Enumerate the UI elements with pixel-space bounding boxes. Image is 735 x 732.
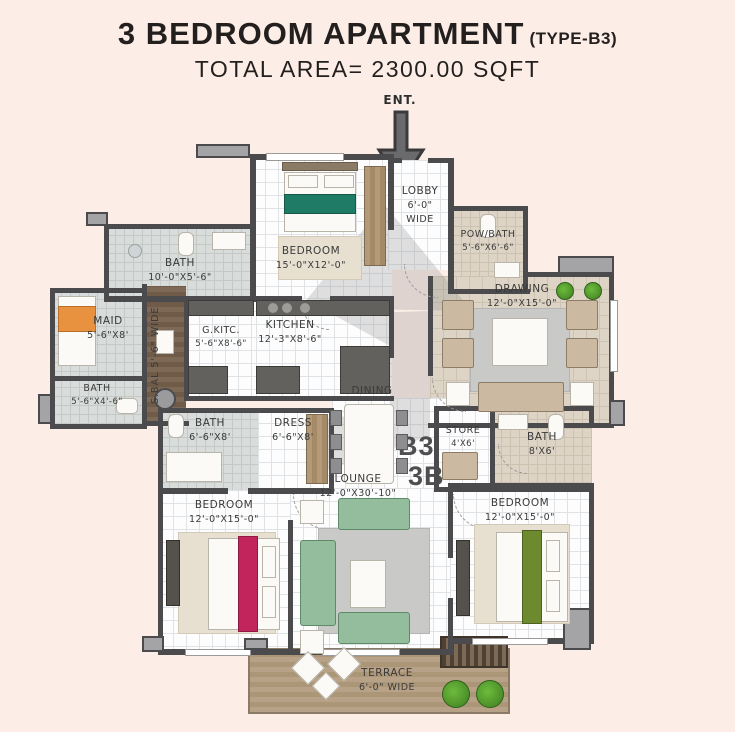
coffee-table [350, 560, 386, 608]
room-label-service-balcony: S.BAL 5'-6" WIDE [148, 300, 182, 410]
dining-chair [330, 434, 342, 450]
wall [448, 158, 454, 294]
wall [434, 487, 594, 492]
wall-column [244, 638, 268, 650]
wall-column [196, 144, 250, 158]
floor-plan-page: { "title": { "main": "3 BEDROOM APARTMEN… [0, 0, 735, 732]
bed-headboard [282, 162, 358, 171]
page-subtitle: TOTAL AREA= 2300.00 SQFT [0, 56, 735, 83]
sofa-green [300, 540, 336, 626]
dresser [456, 540, 470, 616]
wall-column [609, 400, 625, 426]
wall [142, 284, 147, 426]
wall-column [558, 256, 614, 274]
sink [498, 414, 528, 430]
wall [50, 376, 146, 381]
counter-sink [188, 366, 228, 394]
side-table [300, 630, 324, 654]
bed-pillow [288, 175, 318, 188]
wall [250, 154, 256, 302]
stove-burner [268, 303, 278, 313]
entrance-label: ENT. [370, 93, 430, 107]
window [472, 638, 548, 645]
room-label-bath-maid: BATH 5'-6"X4'-6" [54, 382, 140, 408]
wall-column [86, 212, 108, 226]
bed-pillow [262, 586, 276, 618]
wall [50, 424, 147, 429]
dining-chair [396, 410, 408, 426]
room-label-kitchen: KITCHEN 12'-3"X8'-6" [240, 318, 340, 347]
wardrobe [364, 166, 386, 266]
room-label-bedroom-right: BEDROOM 12'-0"X15'-0" [452, 496, 588, 525]
room-label-lounge: LOUNGE 12'-0"X30'-10" [298, 472, 418, 501]
wall [158, 488, 228, 494]
sofa-green [338, 498, 410, 530]
window [266, 153, 344, 161]
toilet [178, 232, 194, 256]
title-block: 3 BEDROOM APARTMENT (TYPE-B3) TOTAL AREA… [0, 16, 735, 83]
wall [589, 406, 594, 428]
room-label-bath-right: BATH 8'X6' [502, 430, 582, 459]
side-table [446, 382, 470, 406]
vanity [166, 452, 222, 482]
dresser [166, 540, 180, 606]
bed-pillow [546, 580, 560, 612]
room-label-bath-left: BATH 6'-6"X8' [164, 416, 256, 445]
window [185, 649, 251, 656]
room-label-bath-top: BATH 10'-0"X5'-6" [110, 256, 250, 285]
coffee-table [492, 318, 548, 366]
side-table [300, 500, 324, 524]
page-title: 3 BEDROOM APARTMENT (TYPE-B3) [0, 16, 735, 52]
room-label-terrace: TERRACE 6'-0" WIDE [322, 666, 452, 695]
bed-runner-olive [522, 530, 542, 624]
storage-box [442, 452, 478, 480]
room-label-maid: MAID 5'-6"X8' [72, 314, 144, 343]
counter [188, 300, 254, 316]
room-label-dress: DRESS 6'-6"X8' [258, 416, 328, 445]
armchair [566, 338, 598, 368]
wall [288, 520, 293, 654]
sofa [478, 382, 564, 412]
window [322, 649, 400, 656]
side-table [570, 382, 594, 406]
stove-burner [282, 303, 292, 313]
room-label-store: STORE 4'X6' [436, 424, 490, 450]
room-label-pow-bath: POW/BATH 5'-6"X6'-6" [452, 228, 524, 254]
wall-column [38, 394, 52, 424]
plant-icon [476, 680, 504, 708]
bed-runner-crimson [238, 536, 258, 632]
bed-pillow [324, 175, 354, 188]
wall [394, 158, 402, 163]
page-title-main: 3 BEDROOM APARTMENT [118, 16, 525, 51]
room-label-bedroom-left: BEDROOM 12'-0"X15'-0" [162, 498, 286, 527]
wall [158, 408, 334, 413]
armchair [442, 338, 474, 368]
room-label-bedroom-top: BEDROOM 15'-0"X12'-0" [256, 244, 366, 273]
window [610, 300, 618, 372]
wall [452, 206, 528, 211]
wall [50, 288, 147, 293]
wall [158, 408, 163, 494]
kitchen-sink-counter [256, 366, 300, 394]
room-label-drawing: DRAWING 12'-0"X15'-0" [442, 282, 602, 311]
wall [104, 224, 254, 229]
room-label-lobby: LOBBY 6'-0" WIDE [392, 184, 448, 227]
bed-pillow [546, 540, 560, 572]
page-title-variant: (TYPE-B3) [529, 29, 617, 48]
bed-pillow [262, 546, 276, 578]
sofa-green [338, 612, 410, 644]
dining-chair [330, 410, 342, 426]
room-label-dining: DINING [336, 384, 408, 399]
sink [212, 232, 246, 250]
sink [494, 262, 520, 278]
dining-chair [396, 434, 408, 450]
stove-burner [300, 303, 310, 313]
wall [490, 406, 495, 492]
bed-blanket-teal [284, 194, 356, 214]
wall-column [142, 636, 164, 652]
